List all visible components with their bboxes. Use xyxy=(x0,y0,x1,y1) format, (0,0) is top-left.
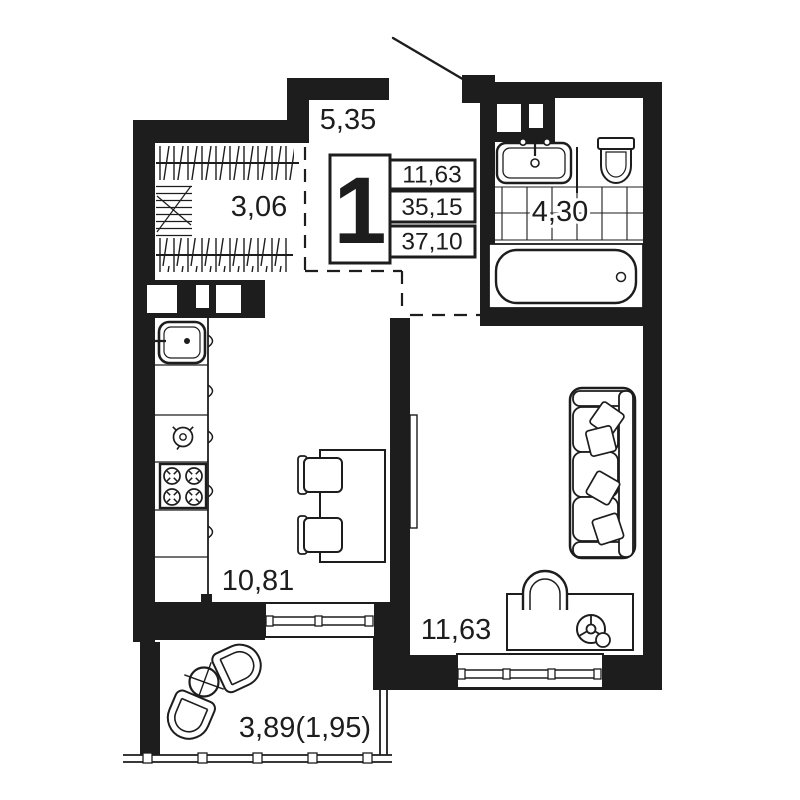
railing-post xyxy=(253,753,262,763)
window-mullion xyxy=(365,616,373,626)
legend-apartment-area: 35,15 xyxy=(401,194,462,221)
wall-kitchen-bottom xyxy=(133,602,265,640)
vent-shaft xyxy=(529,104,543,128)
wall-bathroom-bottom xyxy=(480,308,662,326)
wall-balcony-post xyxy=(140,642,160,755)
stove-icon xyxy=(160,464,206,508)
toilet-icon xyxy=(598,138,634,183)
wall-wardrobe-top xyxy=(133,120,291,143)
vent-shaft xyxy=(216,285,241,313)
legend: 1 11,63 35,15 37,10 xyxy=(330,155,475,264)
window-mullion xyxy=(266,616,273,626)
tv-panel-icon xyxy=(410,415,417,528)
legend-living-area: 11,63 xyxy=(402,162,462,189)
room-label-living-room: 11,63 xyxy=(421,614,491,646)
wall-right xyxy=(643,82,662,690)
room-label-balcony: 3,89(1,95) xyxy=(239,712,371,744)
legend-total-area: 37,10 xyxy=(401,229,462,256)
chair-icon xyxy=(298,456,342,494)
window-mullion xyxy=(315,616,322,626)
room-label-bathroom: 4,30 xyxy=(532,196,588,228)
bathtub-icon xyxy=(489,244,643,308)
window-mullion xyxy=(548,669,555,679)
window-mullion xyxy=(503,669,510,679)
desk-chair-icon xyxy=(523,571,567,610)
floor-plan-page: 1 11,63 35,15 37,10 xyxy=(0,0,800,800)
vent-shaft xyxy=(196,285,209,308)
window-frame xyxy=(457,654,603,688)
wall-hallway-top xyxy=(287,78,389,100)
room-label-hallway: 5,35 xyxy=(320,104,376,136)
room-label-kitchen: 10,81 xyxy=(222,565,295,597)
vent-shaft xyxy=(147,285,177,313)
floor-plan-drawing: 1 11,63 35,15 37,10 xyxy=(0,0,800,800)
wall-left xyxy=(133,120,155,642)
counter-end-block xyxy=(201,594,212,603)
washbasin-icon xyxy=(497,136,571,183)
sofa-icon xyxy=(570,388,635,558)
chair-icon xyxy=(298,516,342,554)
kitchen-balcony-window xyxy=(265,603,375,637)
living-room-window xyxy=(457,654,603,688)
room-label-wardrobe: 3,06 xyxy=(231,191,287,223)
railing-post xyxy=(143,753,152,763)
legend-rooms-count: 1 xyxy=(334,158,387,264)
railing-post xyxy=(363,753,372,763)
railing-post xyxy=(198,753,207,763)
wall-bathroom-top xyxy=(480,82,662,98)
window-mullion xyxy=(458,669,465,679)
railing-post xyxy=(308,753,317,763)
vent-shaft xyxy=(497,104,521,132)
window-mullion xyxy=(594,669,601,679)
